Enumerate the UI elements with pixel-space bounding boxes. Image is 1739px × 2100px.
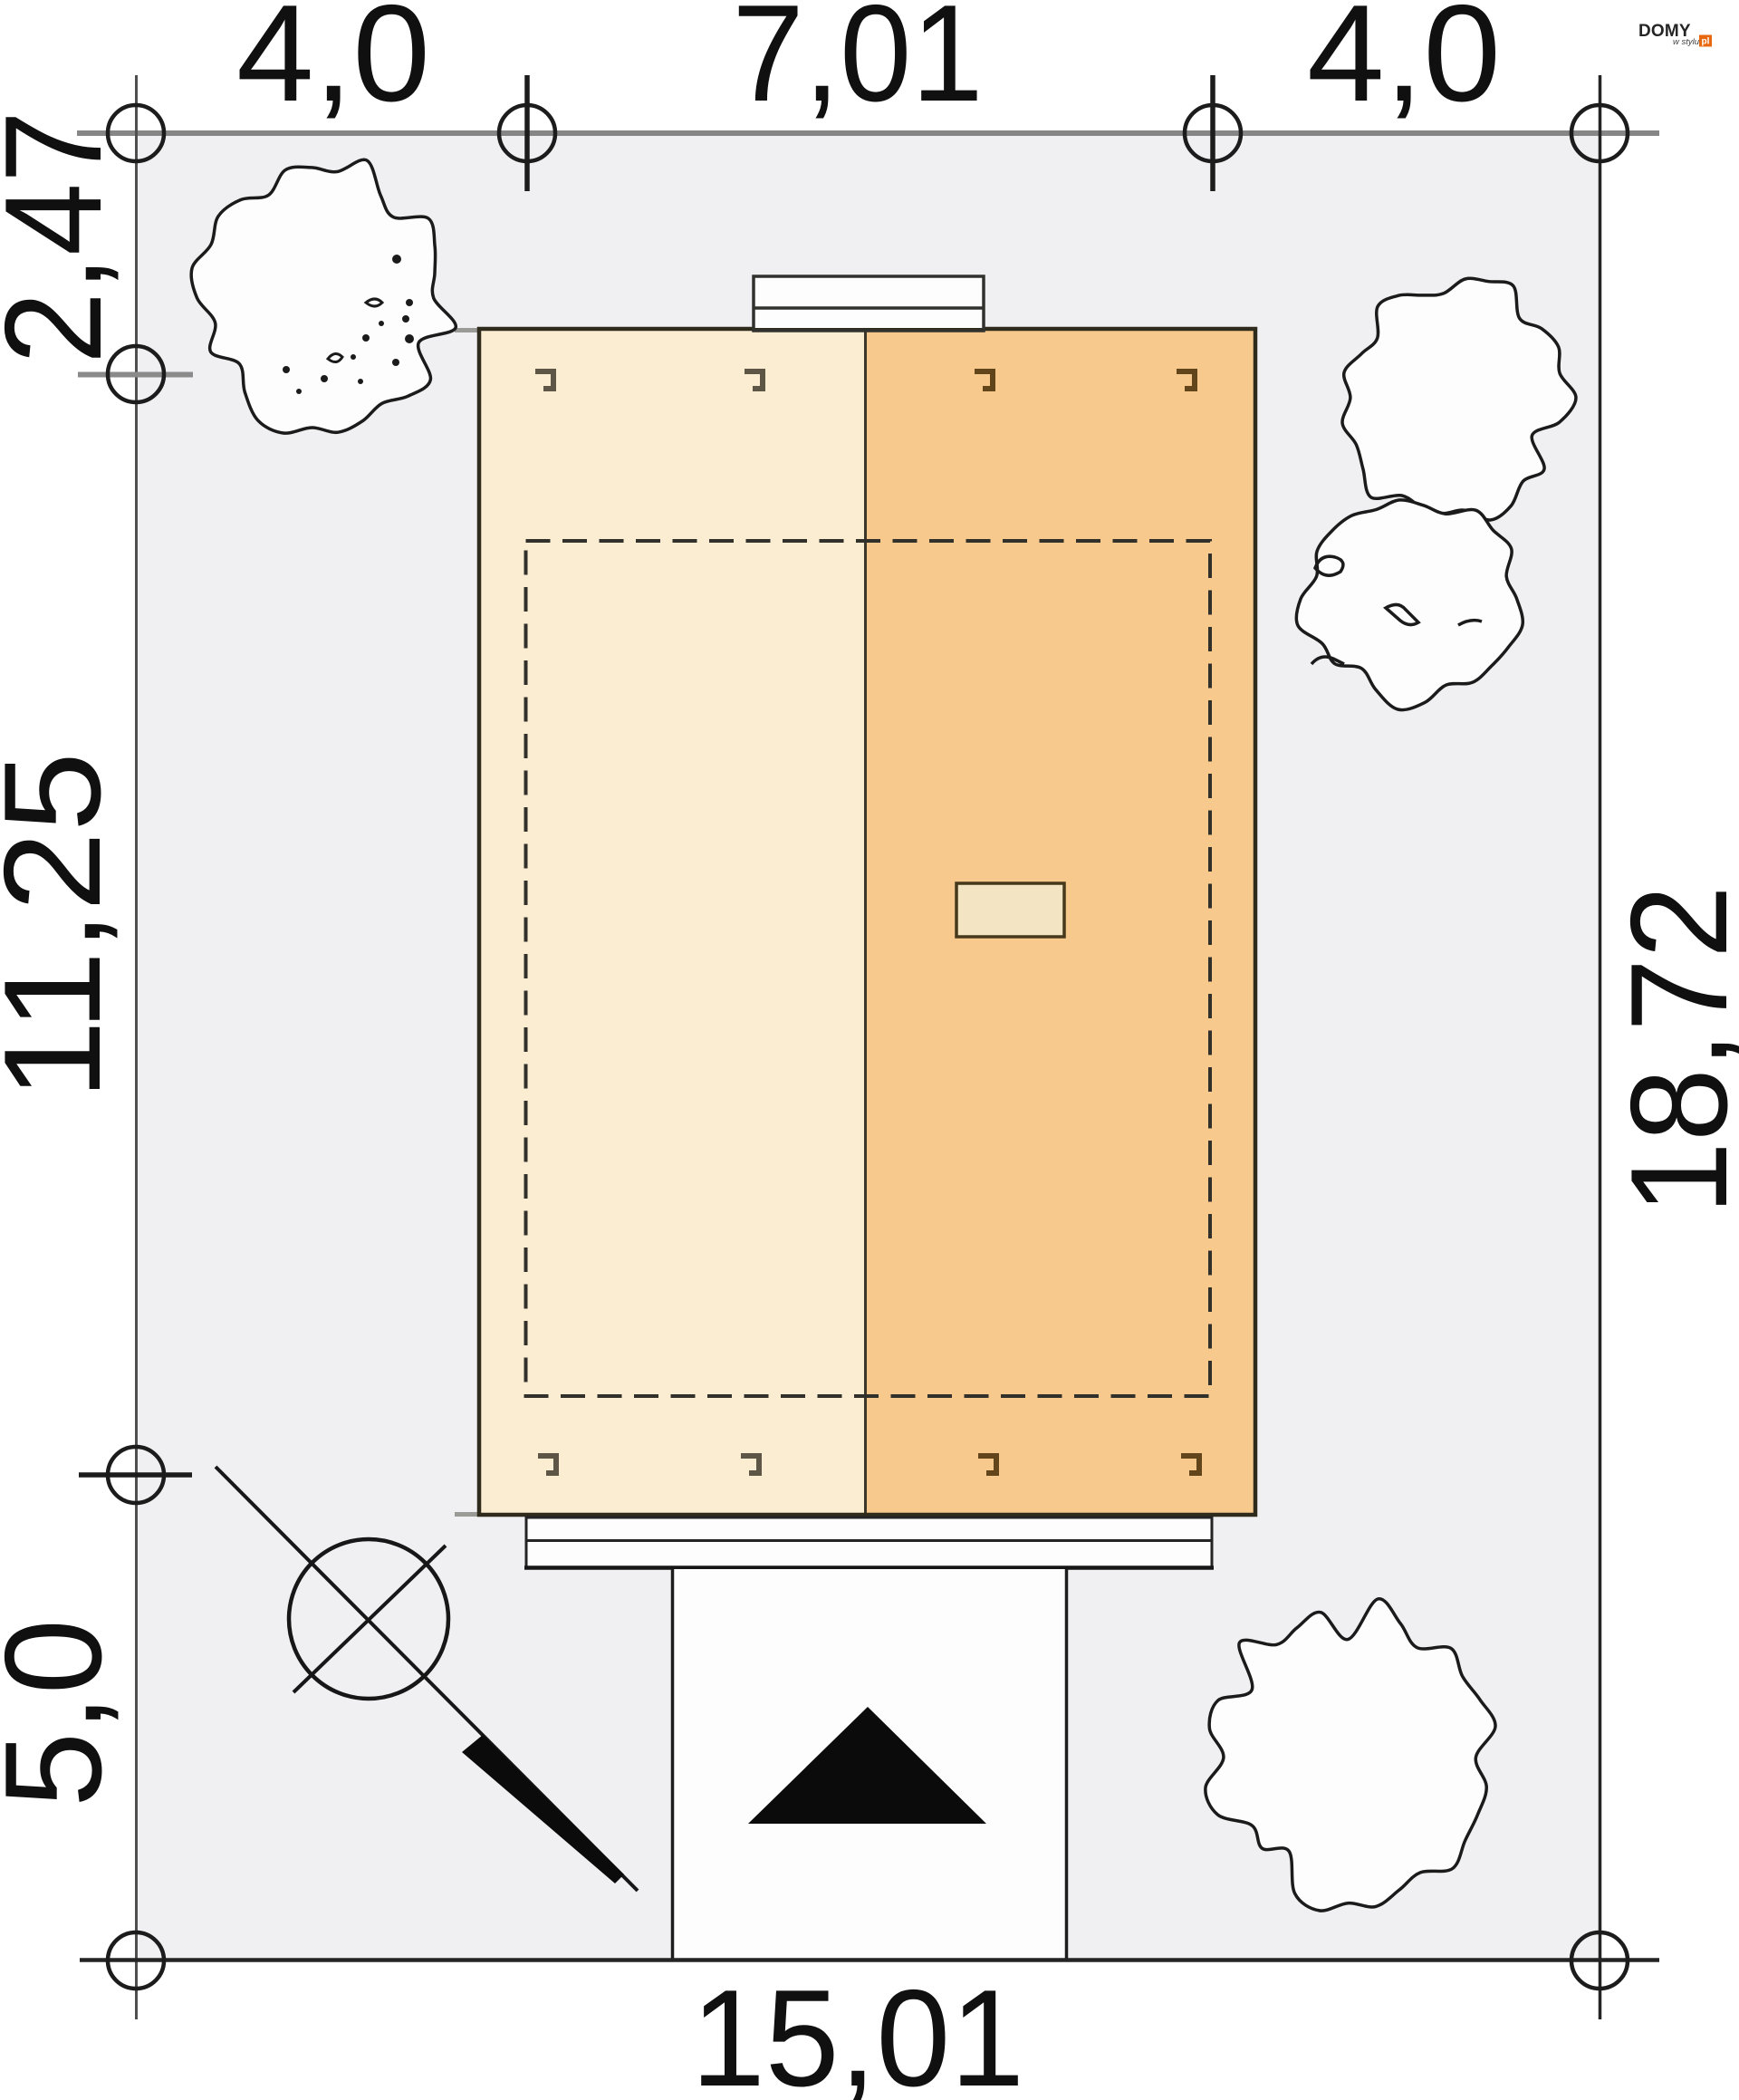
svg-text:w stylu: w stylu	[1673, 37, 1700, 47]
svg-text:5,0: 5,0	[0, 1619, 130, 1807]
svg-text:pl: pl	[1702, 37, 1710, 47]
svg-text:4,0: 4,0	[236, 0, 430, 130]
svg-text:11,25: 11,25	[0, 752, 130, 1100]
svg-text:7,01: 7,01	[733, 0, 984, 130]
svg-text:2,47: 2,47	[0, 111, 130, 364]
svg-text:4,0: 4,0	[1307, 0, 1501, 130]
svg-text:15,01: 15,01	[691, 1961, 1024, 2100]
svg-text:18,72: 18,72	[1602, 885, 1739, 1215]
